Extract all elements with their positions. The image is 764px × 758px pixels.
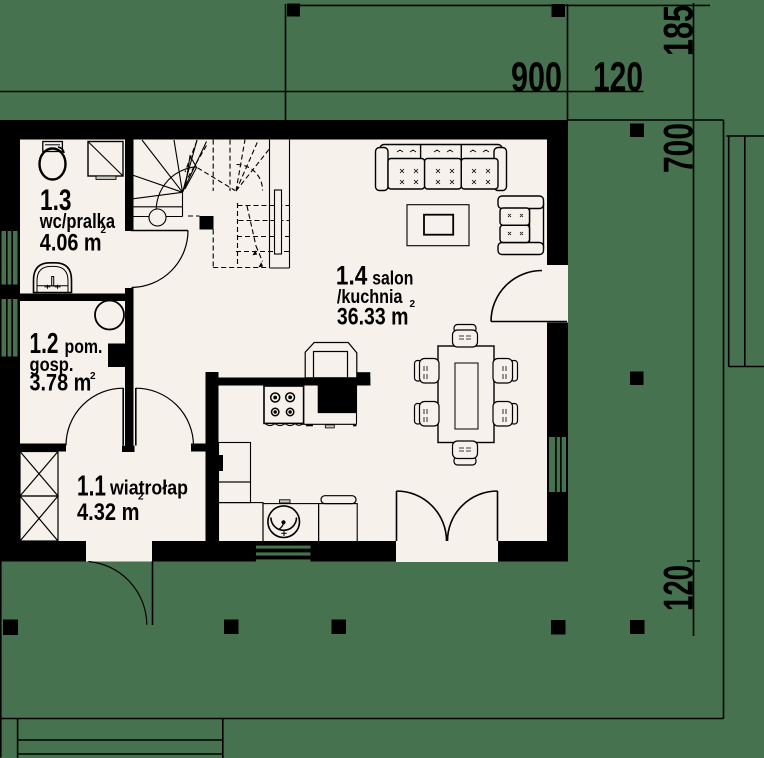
- svg-text:700: 700: [655, 123, 702, 173]
- svg-text:2: 2: [101, 225, 107, 236]
- svg-text:36.33 m: 36.33 m: [337, 303, 409, 330]
- svg-text:3.78 m: 3.78 m: [30, 369, 92, 396]
- svg-text:900: 900: [511, 53, 562, 100]
- svg-text:4.06 m: 4.06 m: [40, 229, 102, 256]
- svg-text:wiatrołap: wiatrołap: [109, 478, 188, 500]
- svg-text:4.32 m: 4.32 m: [77, 498, 139, 525]
- svg-text:2: 2: [90, 371, 96, 382]
- svg-text:185: 185: [655, 5, 702, 56]
- svg-text:2: 2: [410, 299, 416, 310]
- svg-text:120: 120: [655, 565, 702, 611]
- svg-text:120: 120: [593, 53, 643, 100]
- svg-text:2: 2: [138, 492, 144, 503]
